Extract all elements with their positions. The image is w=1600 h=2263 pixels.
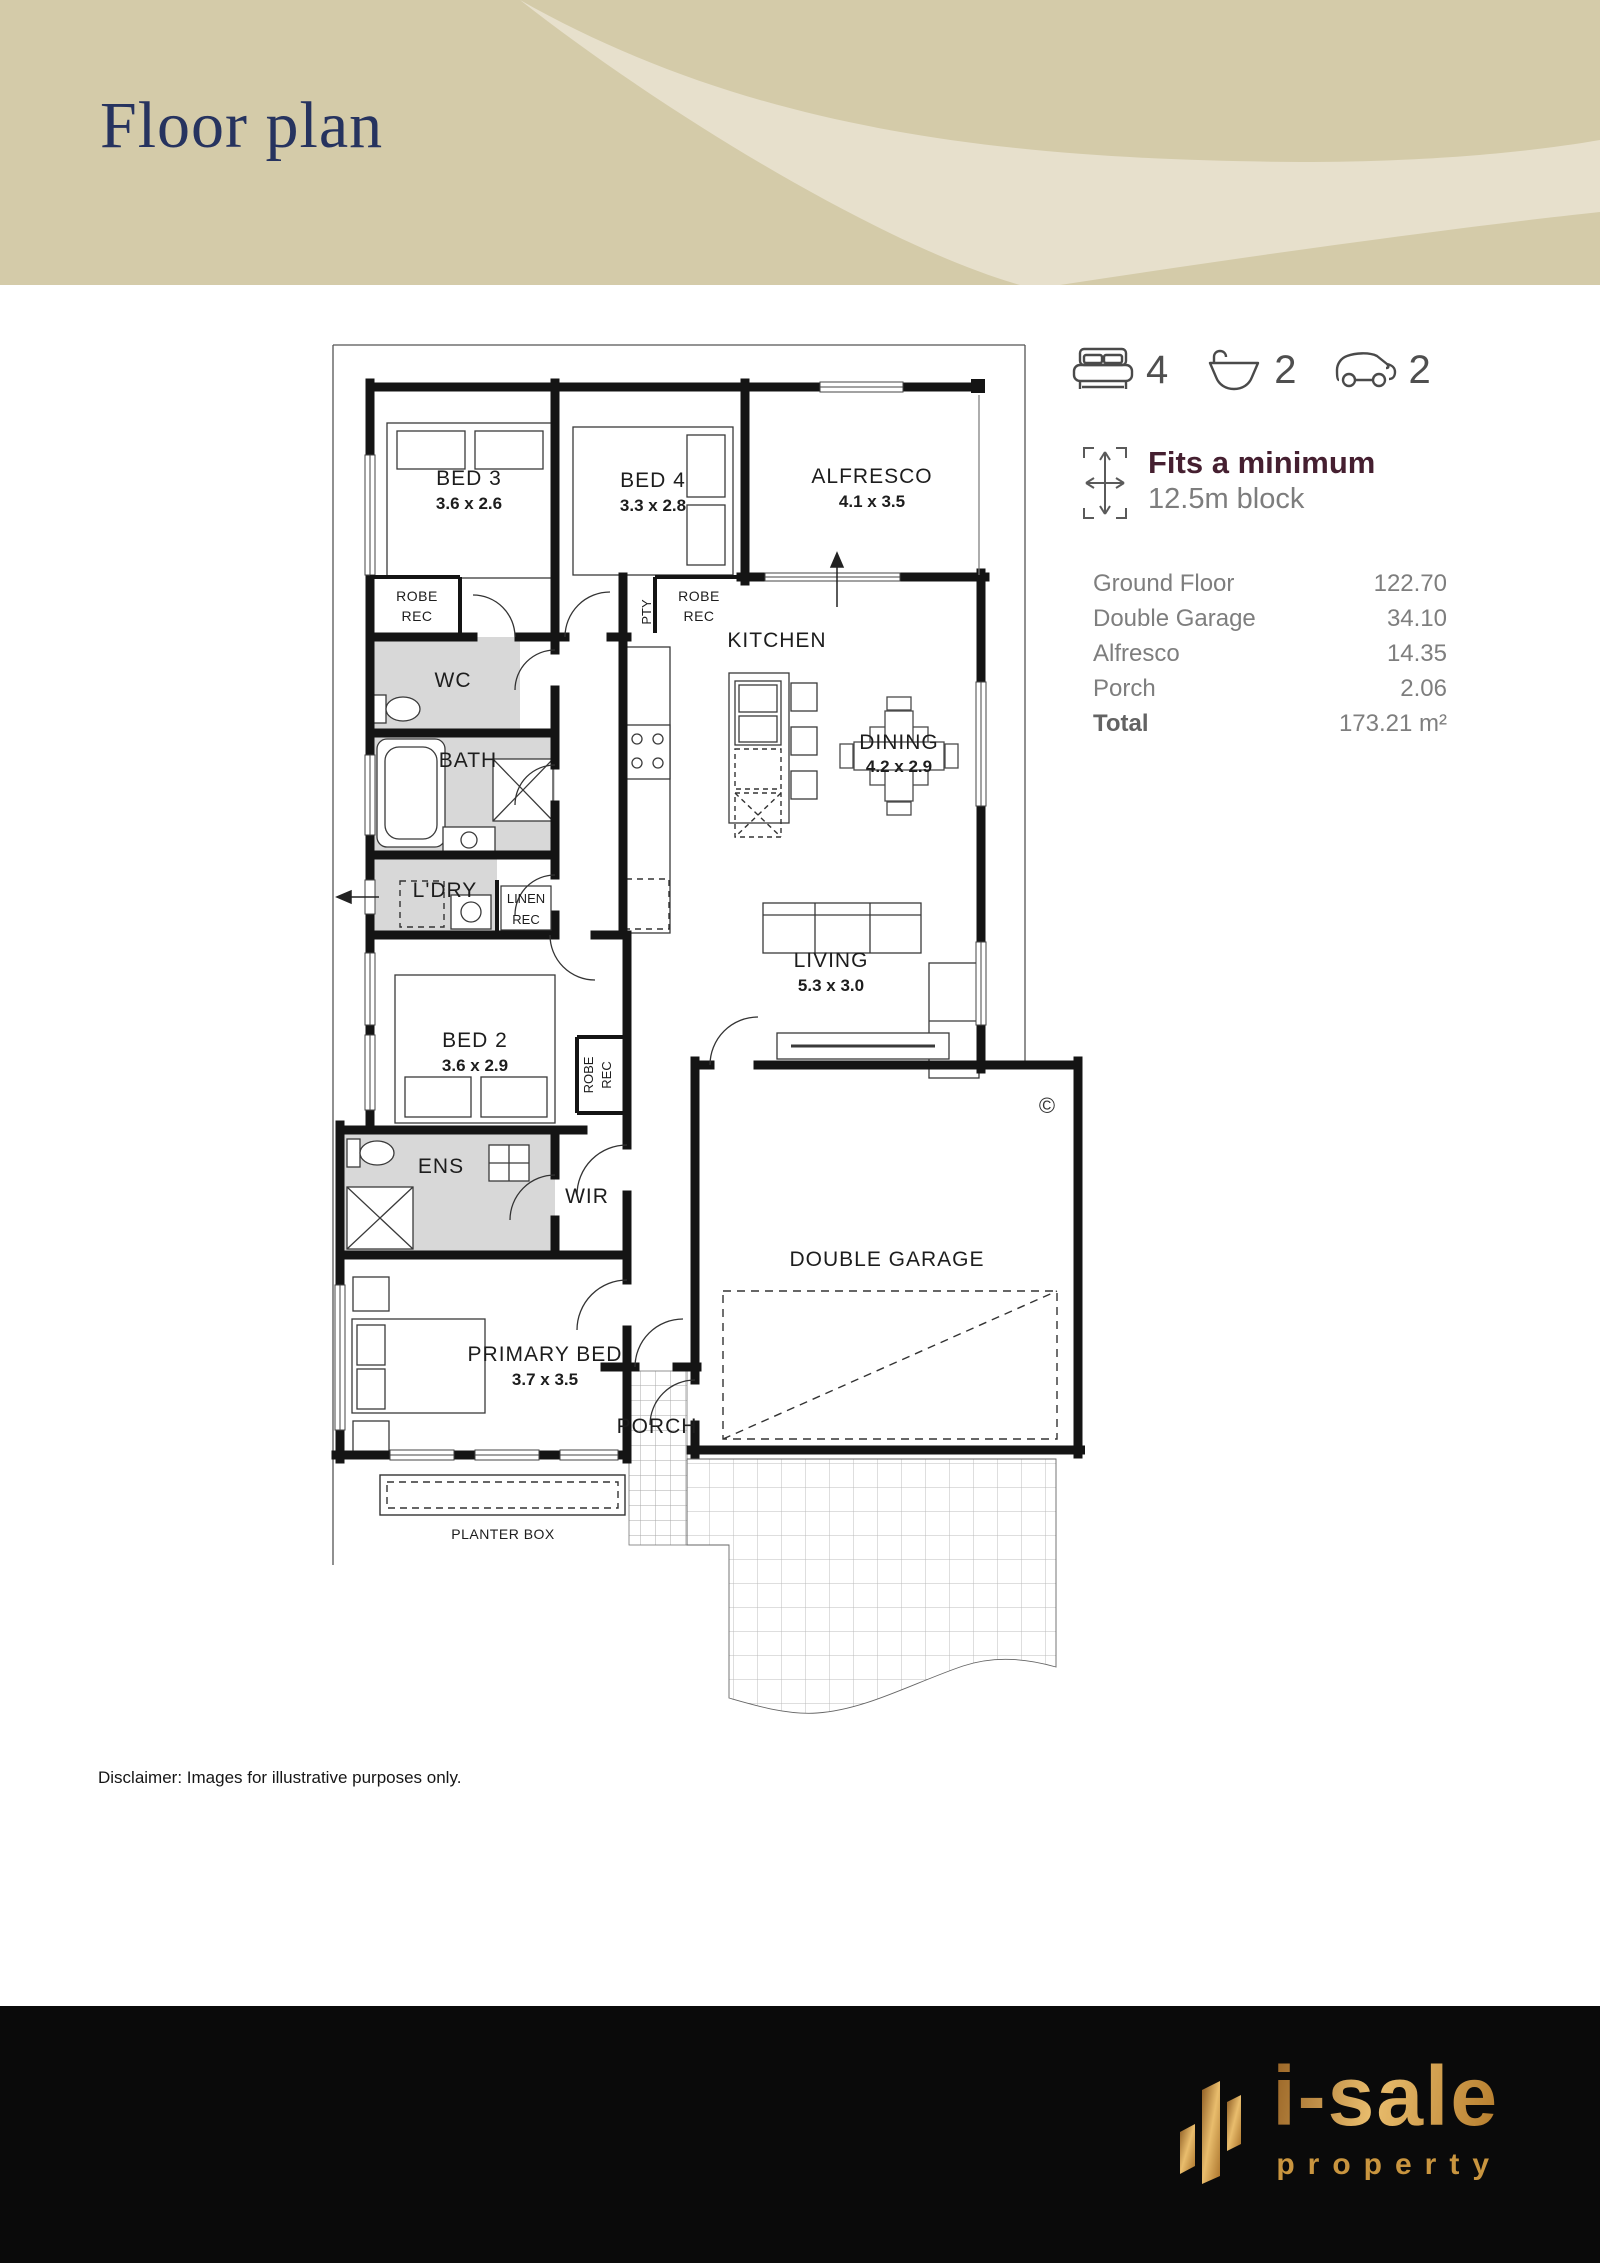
room-label-laundry: L'DRY xyxy=(413,879,478,902)
area-value: 2.06 xyxy=(1327,675,1447,703)
room-label-alfresco: ALFRESCO xyxy=(811,465,932,488)
room-dims-bed2: 3.6 x 2.9 xyxy=(442,1056,508,1075)
room-label-bed4: BED 4 xyxy=(620,469,686,492)
fit-block-size: 12.5m block xyxy=(1148,480,1375,518)
area-row-ground-floor: Ground Floor 122.70 xyxy=(1093,566,1447,601)
room-label-bed2: BED 2 xyxy=(442,1029,508,1052)
room-dims-primary: 3.7 x 3.5 xyxy=(512,1370,578,1389)
room-label-planter: PLANTER BOX xyxy=(451,1526,555,1542)
area-row-alfresco: Alfresco 14.35 xyxy=(1093,636,1447,671)
bed-icon xyxy=(1072,347,1134,393)
block-size-icon xyxy=(1082,446,1128,520)
car-icon xyxy=(1335,348,1397,392)
area-label: Double Garage xyxy=(1093,605,1327,633)
header-banner: Floor plan xyxy=(0,0,1600,285)
room-label-ens: ENS xyxy=(418,1155,464,1178)
footer-band: i-sale property xyxy=(0,2006,1600,2263)
alfresco-post xyxy=(971,379,985,393)
bath-icon xyxy=(1206,349,1262,391)
area-total-label: Total xyxy=(1093,710,1287,738)
area-row-porch: Porch 2.06 xyxy=(1093,671,1447,706)
robe-label-bed4: ROBE xyxy=(678,588,720,604)
copyright-symbol: © xyxy=(1039,1093,1055,1118)
area-label: Alfresco xyxy=(1093,640,1327,668)
brand-name: i-sale xyxy=(1272,2054,1499,2138)
brand-logo-mark xyxy=(1180,2054,1246,2194)
room-label-dining: DINING xyxy=(859,731,939,754)
driveway xyxy=(687,1459,1056,1713)
room-dims-dining: 4.2 x 2.9 xyxy=(866,757,932,776)
area-row-double-garage: Double Garage 34.10 xyxy=(1093,601,1447,636)
room-dims-alfresco: 4.1 x 3.5 xyxy=(839,492,905,511)
area-label: Ground Floor xyxy=(1093,570,1327,598)
room-label-wir: WIR xyxy=(565,1185,609,1208)
areas-table: Ground Floor 122.70 Double Garage 34.10 … xyxy=(1093,566,1447,741)
cars-count: 2 xyxy=(1409,342,1431,398)
room-label-primary: PRIMARY BED xyxy=(468,1343,623,1366)
fit-heading: Fits a minimum xyxy=(1148,446,1375,480)
robe-label-bed2: ROBE xyxy=(581,1056,596,1093)
beds-count: 4 xyxy=(1146,342,1168,398)
floor-plan-drawing: BED 3 3.6 x 2.6 BED 4 3.3 x 2.8 ALFRESCO… xyxy=(325,335,1085,1795)
area-row-total: Total 173.21 m² xyxy=(1093,706,1447,741)
area-value: 34.10 xyxy=(1327,605,1447,633)
stats-row: 4 2 2 xyxy=(1072,342,1431,398)
room-label-pantry: PTY xyxy=(639,599,654,625)
room-dims-bed4: 3.3 x 2.8 xyxy=(620,496,686,515)
room-label-garage: DOUBLE GARAGE xyxy=(789,1248,984,1271)
planter-box xyxy=(380,1475,625,1515)
brand-tagline: property xyxy=(1276,2148,1502,2182)
block-fit: Fits a minimum 12.5m block xyxy=(1082,446,1375,520)
robe-label-bed3: ROBE xyxy=(396,588,438,604)
baths-count: 2 xyxy=(1274,342,1296,398)
brand-logo: i-sale property xyxy=(1180,2054,1502,2194)
floor-plan-svg: BED 3 3.6 x 2.6 BED 4 3.3 x 2.8 ALFRESCO… xyxy=(325,335,1085,1795)
area-value: 122.70 xyxy=(1327,570,1447,598)
floor-plan-page: Floor plan xyxy=(0,0,1600,2263)
disclaimer-text: Disclaimer: Images for illustrative purp… xyxy=(98,1768,461,1788)
linen-rec-label: REC xyxy=(512,912,539,927)
room-label-kitchen: KITCHEN xyxy=(727,629,826,652)
area-total-value: 173.21 m² xyxy=(1287,710,1447,738)
room-label-bath: BATH xyxy=(439,749,497,772)
area-label: Porch xyxy=(1093,675,1327,703)
room-dims-living: 5.3 x 3.0 xyxy=(798,976,864,995)
room-label-porch: PORCH xyxy=(617,1415,698,1438)
area-value: 14.35 xyxy=(1327,640,1447,668)
room-label-bed3: BED 3 xyxy=(436,467,502,490)
room-label-wc: WC xyxy=(435,669,472,692)
room-label-living: LIVING xyxy=(794,949,869,972)
rec-label-bed2: REC xyxy=(599,1061,614,1088)
rec-label-bed3: REC xyxy=(401,608,432,624)
linen-label: LINEN xyxy=(507,891,545,906)
page-title: Floor plan xyxy=(100,88,383,164)
room-dims-bed3: 3.6 x 2.6 xyxy=(436,494,502,513)
rec-label-bed4: REC xyxy=(683,608,714,624)
porch-tiles xyxy=(629,1371,687,1545)
